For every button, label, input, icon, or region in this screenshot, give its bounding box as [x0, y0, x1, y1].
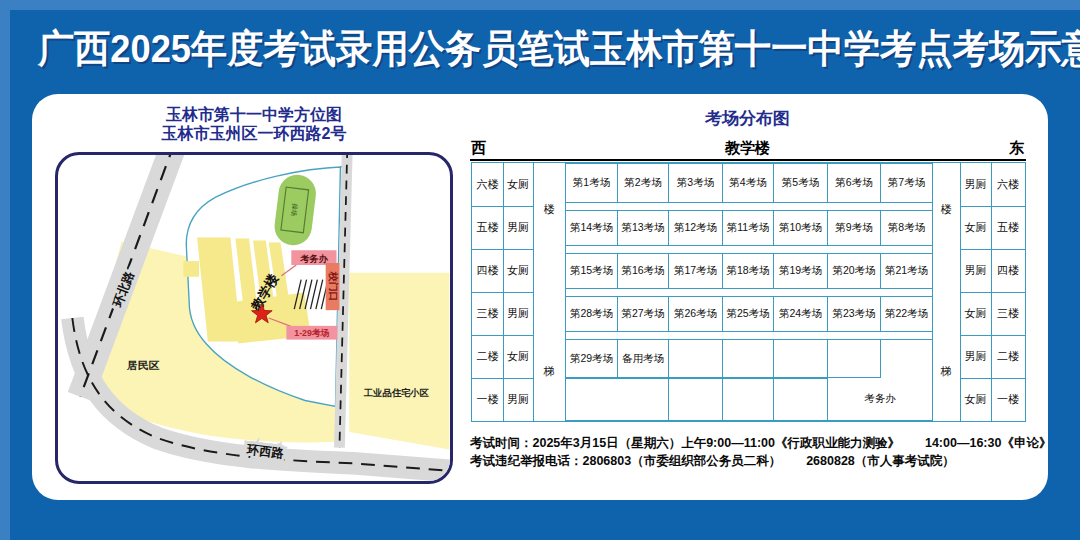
stairs-label: 楼 [533, 197, 565, 221]
top-edge-highlight [0, 0, 1080, 10]
room-distribution-grid: 六楼女厕男厕六楼五楼男厕女厕五楼四楼女厕男厕四楼三楼男厕女厕三楼二楼女厕男厕二楼… [471, 162, 1026, 422]
page-title: 广西2025年度考试录用公务员笔试玉林市第十一中学考点考场示意图 [38, 22, 1042, 76]
east-label: 东 [1009, 139, 1024, 158]
building-label: 教学楼 [471, 139, 1024, 158]
exam-room-cell: 第15考场 [565, 253, 618, 289]
exam-room-cell: 第9考场 [827, 210, 881, 246]
exam-room-cell: 第13考场 [617, 210, 669, 246]
school-gate-tag: 校门口 [326, 263, 340, 310]
exam-room-cell [827, 339, 881, 378]
exam-room-cell: 第23考场 [827, 296, 881, 332]
stairs-label: 梯 [533, 359, 565, 383]
exam-room-cell [773, 339, 828, 378]
exam-room-cell: 第26考场 [668, 296, 723, 332]
exam-room-cell: 第10考场 [773, 210, 828, 246]
toilet-label-right: 男厕 [960, 249, 991, 292]
floor-label-right: 六楼 [991, 163, 1025, 206]
exam-room-cell: 第11考场 [722, 210, 774, 246]
report-phone-text: 考试违纪举报电话：2806803（市委组织部公务员二科） 2680828（市人事… [470, 453, 955, 470]
exam-room-cell: 第29考场 [565, 339, 618, 378]
exam-room-cell: 第19考场 [773, 253, 828, 289]
exam-room-cell: 第5考场 [773, 163, 828, 203]
exam-room-cell: 第17考场 [668, 253, 723, 289]
floor-label-left: 五楼 [472, 206, 503, 249]
ground-floor-cell [722, 378, 774, 421]
exam-room-cell: 第6考场 [827, 163, 881, 203]
exam-room-cell: 第27考场 [617, 296, 669, 332]
exam-room-cell: 第22考场 [880, 296, 933, 332]
toilet-label-left: 女厕 [503, 335, 533, 378]
exam-room-cell: 第4考场 [722, 163, 774, 203]
floor-label-right: 一楼 [991, 378, 1025, 421]
industrial-label: 工业品住宅小区 [363, 387, 429, 398]
floor-label-left: 四楼 [472, 249, 503, 292]
exam-office-label: 考务办 [300, 254, 329, 264]
exam-room-cell: 第12考场 [668, 210, 723, 246]
exam-room-cell: 第3考场 [668, 163, 723, 203]
exam-rooms-label: 1-29考场 [294, 328, 329, 338]
floor-label-left: 三楼 [472, 292, 503, 335]
exam-room-cell: 第21考场 [880, 253, 933, 289]
exam-room-cell [722, 339, 774, 378]
stairs-label: 楼 [932, 197, 960, 221]
industrial-area [349, 273, 449, 450]
toilet-label-right: 男厕 [960, 163, 991, 206]
location-map: 环北路 环西路 操场 [55, 152, 453, 484]
exam-rooms-tag: 1-29考场 [286, 326, 337, 340]
ground-floor-cell [773, 378, 828, 421]
floor-label-right: 三楼 [991, 292, 1025, 335]
map-title-line2: 玉林市玉州区一环西路2号 [55, 124, 453, 145]
exam-room-cell: 第8考场 [880, 210, 933, 246]
exam-room-cell: 第16考场 [617, 253, 669, 289]
toilet-label-right: 女厕 [960, 378, 991, 421]
toilet-label-left: 女厕 [503, 249, 533, 292]
direction-underline [470, 159, 1026, 161]
residential-label: 居民区 [126, 359, 160, 371]
exam-room-cell: 第2考场 [617, 163, 669, 203]
floor-label-right: 二楼 [991, 335, 1025, 378]
exam-room-cell: 第20考场 [827, 253, 881, 289]
school-gate-label: 校门口 [328, 271, 339, 301]
floor-label-right: 四楼 [991, 249, 1025, 292]
exam-room-cell: 备用考场 [617, 339, 669, 378]
toilet-label-left: 女厕 [503, 163, 533, 206]
exam-room-cell [880, 339, 933, 378]
toilet-label-right: 男厕 [960, 335, 991, 378]
poster-page: 广西2025年度考试录用公务员笔试玉林市第十一中学考点考场示意图 玉林市第十一中… [0, 0, 1080, 540]
exam-room-cell: 第14考场 [565, 210, 618, 246]
floor-label-right: 五楼 [991, 206, 1025, 249]
floor-label-left: 二楼 [472, 335, 503, 378]
map-title-line1: 玉林市第十一中学方位图 [55, 105, 453, 126]
exam-room-cell: 第18考场 [722, 253, 774, 289]
exam-room-cell: 第24考场 [773, 296, 828, 332]
exam-room-cell: 第7考场 [880, 163, 933, 203]
stairs-label: 梯 [932, 359, 960, 383]
floor-label-left: 一楼 [472, 378, 503, 421]
ground-floor-cell [565, 378, 669, 421]
ground-floor-cell [668, 378, 723, 421]
toilet-label-left: 男厕 [503, 206, 533, 249]
toilet-label-left: 男厕 [503, 292, 533, 335]
exam-room-cell: 第28考场 [565, 296, 618, 332]
exam-room-cell: 第25考场 [722, 296, 774, 332]
exam-room-cell [668, 339, 723, 378]
toilet-label-right: 女厕 [960, 292, 991, 335]
exam-room-cell: 第1考场 [565, 163, 618, 203]
floor-label-left: 六楼 [472, 163, 503, 206]
map-drawing: 环北路 环西路 操场 [58, 155, 450, 481]
toilet-label-left: 男厕 [503, 378, 533, 421]
exam-office-cell: 考务办 [827, 378, 933, 421]
exam-time-text: 考试时间：2025年3月15日（星期六）上午9:00—11:00《行政职业能力测… [470, 435, 1051, 452]
direction-row: 西 教学楼 东 [471, 139, 1024, 158]
exam-office-tag: 考务办 [291, 250, 336, 265]
distribution-title: 考场分布图 [471, 107, 1024, 130]
toilet-label-right: 女厕 [960, 206, 991, 249]
left-edge-highlight [0, 0, 10, 540]
